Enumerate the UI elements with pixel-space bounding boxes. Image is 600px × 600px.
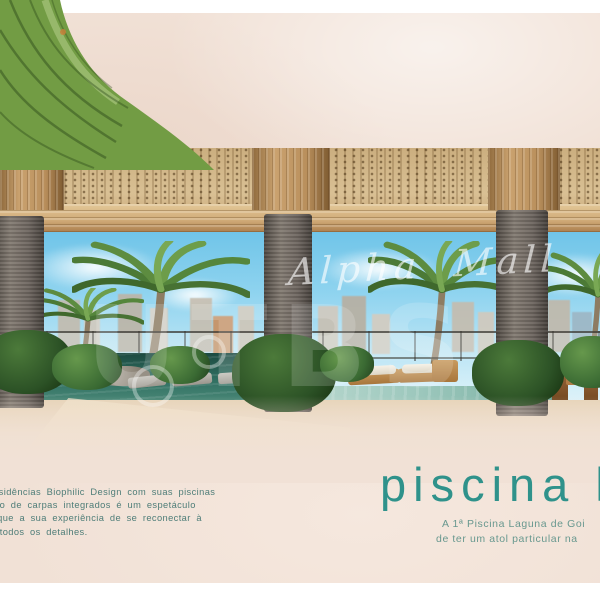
watermark-ring [132, 365, 174, 407]
body-paragraph: Residências Biophilic Design com suas pi… [0, 486, 215, 539]
paragraph-line3: a que a sua experiência de se reconectar… [0, 512, 215, 525]
page-title: piscina la [380, 457, 600, 512]
brochure-page: UTBS Alpha Mall piscina la A 1ª Piscina … [0, 0, 600, 600]
paragraph-line1: Residências Biophilic Design com suas pi… [0, 486, 215, 499]
paragraph-line2: lago de carpas integrados é um espetácul… [0, 499, 215, 512]
subheading-line2: de ter um atol particular na [436, 532, 585, 547]
wood-beam [488, 148, 560, 210]
subheading-line1: A 1ª Piscina Laguna de Goi [442, 517, 585, 532]
bottom-white-margin [0, 583, 600, 600]
paragraph-line4: m todos os detalhes. [0, 526, 215, 539]
subheading: A 1ª Piscina Laguna de Goi de ter um ato… [436, 517, 585, 547]
wood-beam [252, 148, 330, 210]
tropical-leaf [0, 0, 238, 170]
watermark-ring [192, 335, 226, 369]
